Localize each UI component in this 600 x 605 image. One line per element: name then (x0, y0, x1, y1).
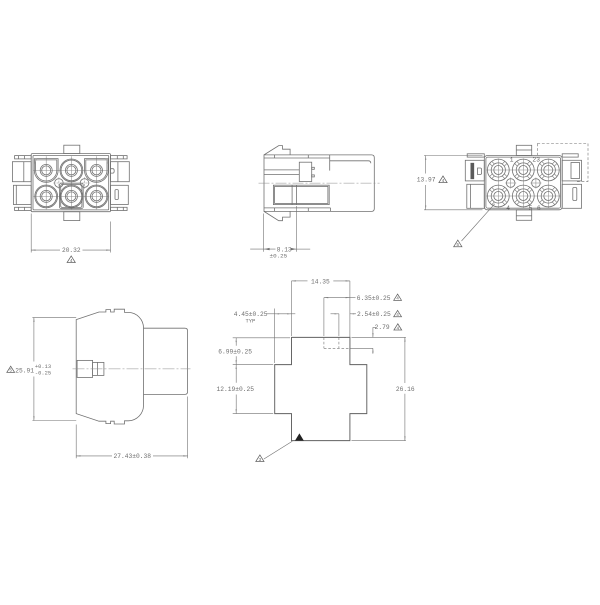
svg-text:26.16: 26.16 (396, 386, 415, 393)
svg-text:±0.25: ±0.25 (270, 252, 288, 259)
svg-text:1: 1 (510, 157, 514, 164)
svg-text:6.99±0.25: 6.99±0.25 (218, 349, 252, 356)
svg-text:13.97: 13.97 (417, 176, 436, 183)
svg-text:4: 4 (442, 178, 445, 184)
svg-text:25.91: 25.91 (15, 367, 34, 374)
svg-text:TYP: TYP (246, 319, 256, 325)
svg-text:5: 5 (529, 205, 533, 212)
svg-text:4: 4 (396, 297, 399, 302)
svg-text:5: 5 (9, 369, 12, 374)
svg-text:27.43±0.38: 27.43±0.38 (114, 453, 152, 460)
svg-text:12.19±0.25: 12.19±0.25 (217, 386, 255, 393)
svg-text:6.35±0.25: 6.35±0.25 (357, 295, 391, 302)
svg-text:+0.13: +0.13 (35, 364, 51, 370)
svg-text:6: 6 (537, 205, 541, 212)
svg-text:14.35: 14.35 (311, 278, 330, 285)
svg-text:4: 4 (70, 258, 73, 264)
svg-text:2.54±0.25: 2.54±0.25 (357, 311, 391, 318)
svg-text:4.45±0.25: 4.45±0.25 (234, 311, 268, 318)
svg-text:4: 4 (506, 205, 510, 212)
svg-text:3: 3 (536, 156, 540, 163)
svg-text:4: 4 (396, 313, 399, 318)
svg-text:3: 3 (259, 457, 262, 463)
svg-text:2.79: 2.79 (375, 324, 390, 331)
svg-text:-0.25: -0.25 (35, 371, 51, 377)
svg-text:5: 5 (456, 242, 459, 248)
svg-text:20.32: 20.32 (62, 247, 81, 254)
svg-text:4: 4 (396, 326, 399, 331)
